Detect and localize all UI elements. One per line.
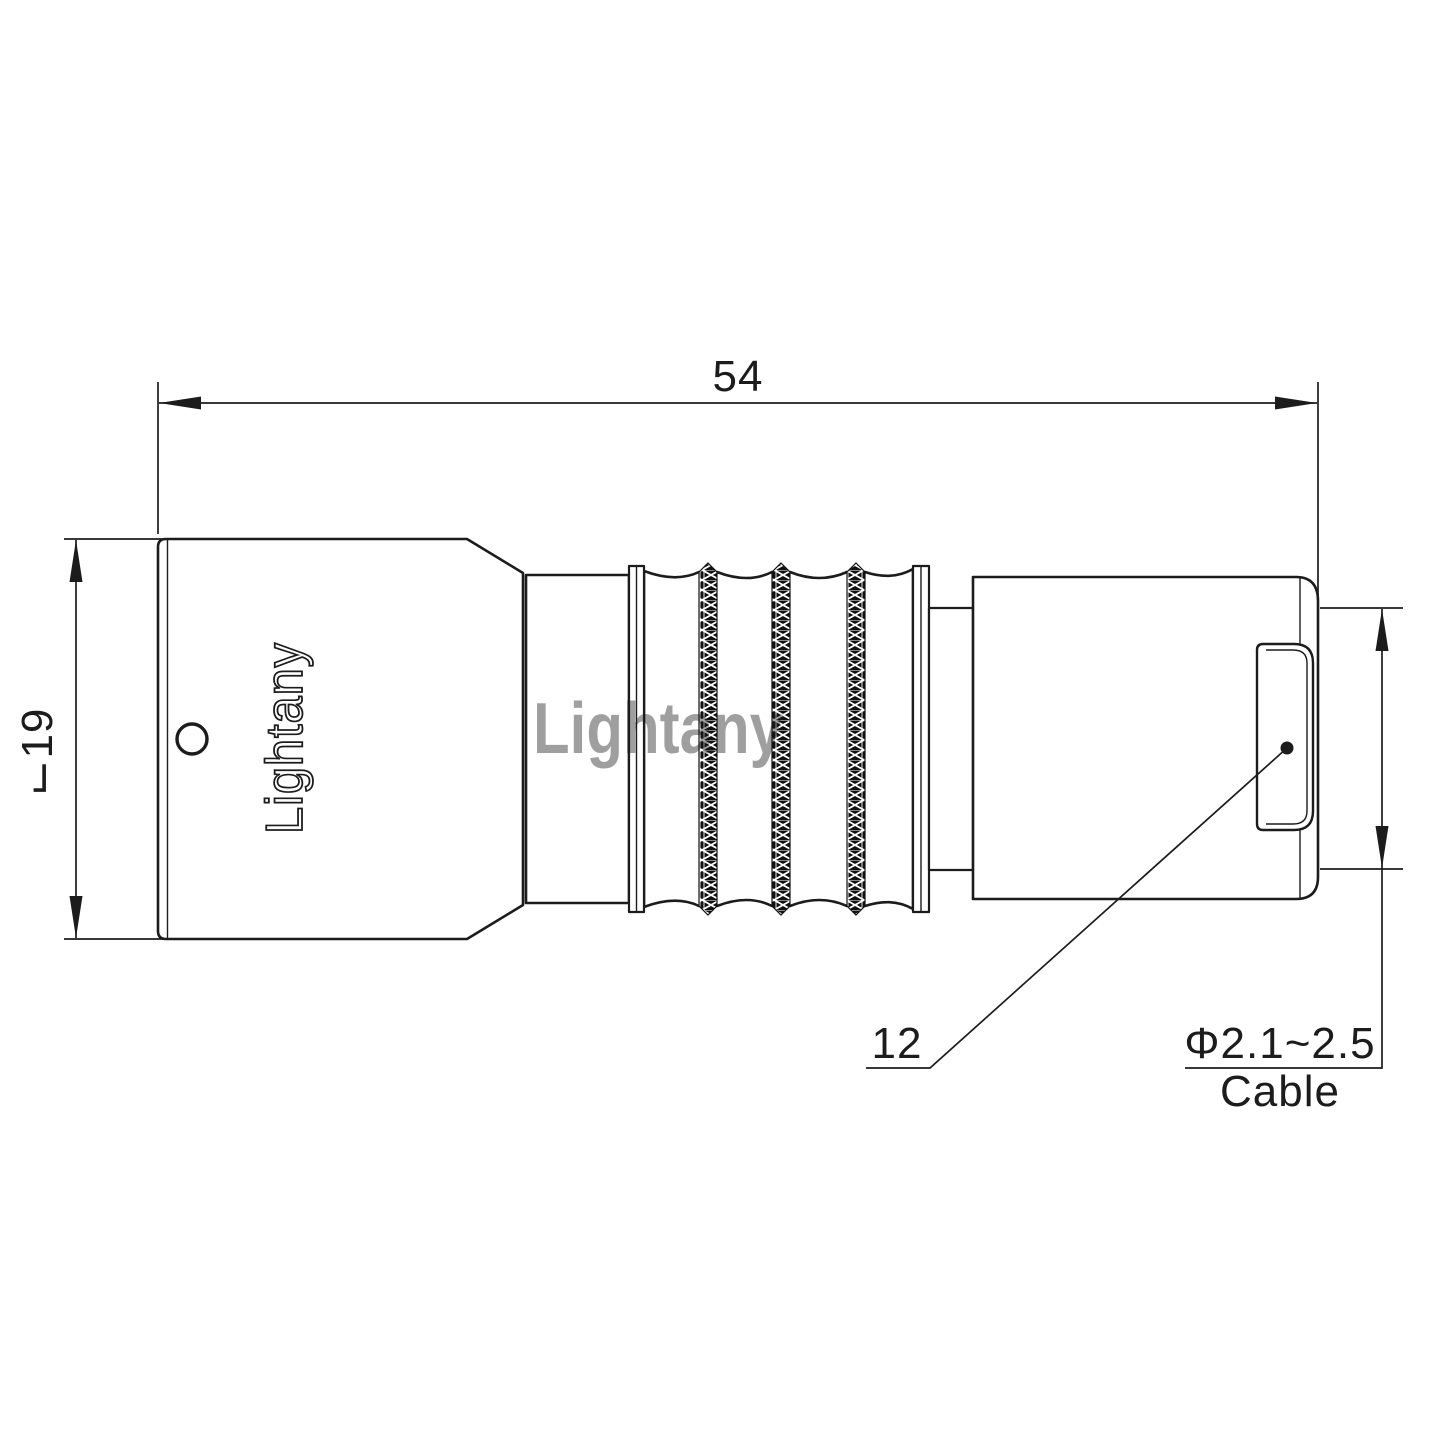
total-length-label: 54 [713,352,764,401]
cable-range-label: Φ2.1~2.5 [1184,1019,1375,1068]
knurl-band [847,563,865,915]
cable-word-label: Cable [1220,1067,1340,1116]
cable-bushing [1257,644,1313,830]
body-diameter-label: ⌙19 [13,708,62,797]
arrowhead-up [70,540,83,582]
arrowhead-left [159,397,201,410]
neck [929,608,973,870]
engraving-text: Lightany [256,642,314,834]
arrowhead-down [70,896,83,938]
part-ref-label: 12 [872,1019,923,1068]
watermark-text: Lightany [533,689,783,769]
arrowhead-up [1376,609,1389,651]
technical-drawing-canvas: Lightany 54 [0,0,1440,1440]
connector-technical-drawing: Lightany 54 [0,0,1440,1440]
arrowhead-down [1376,826,1389,868]
left-body [158,539,523,939]
arrowhead-right [1275,397,1317,410]
dimension-body-diameter: ⌙19 [13,539,163,939]
body-hole [177,724,207,754]
